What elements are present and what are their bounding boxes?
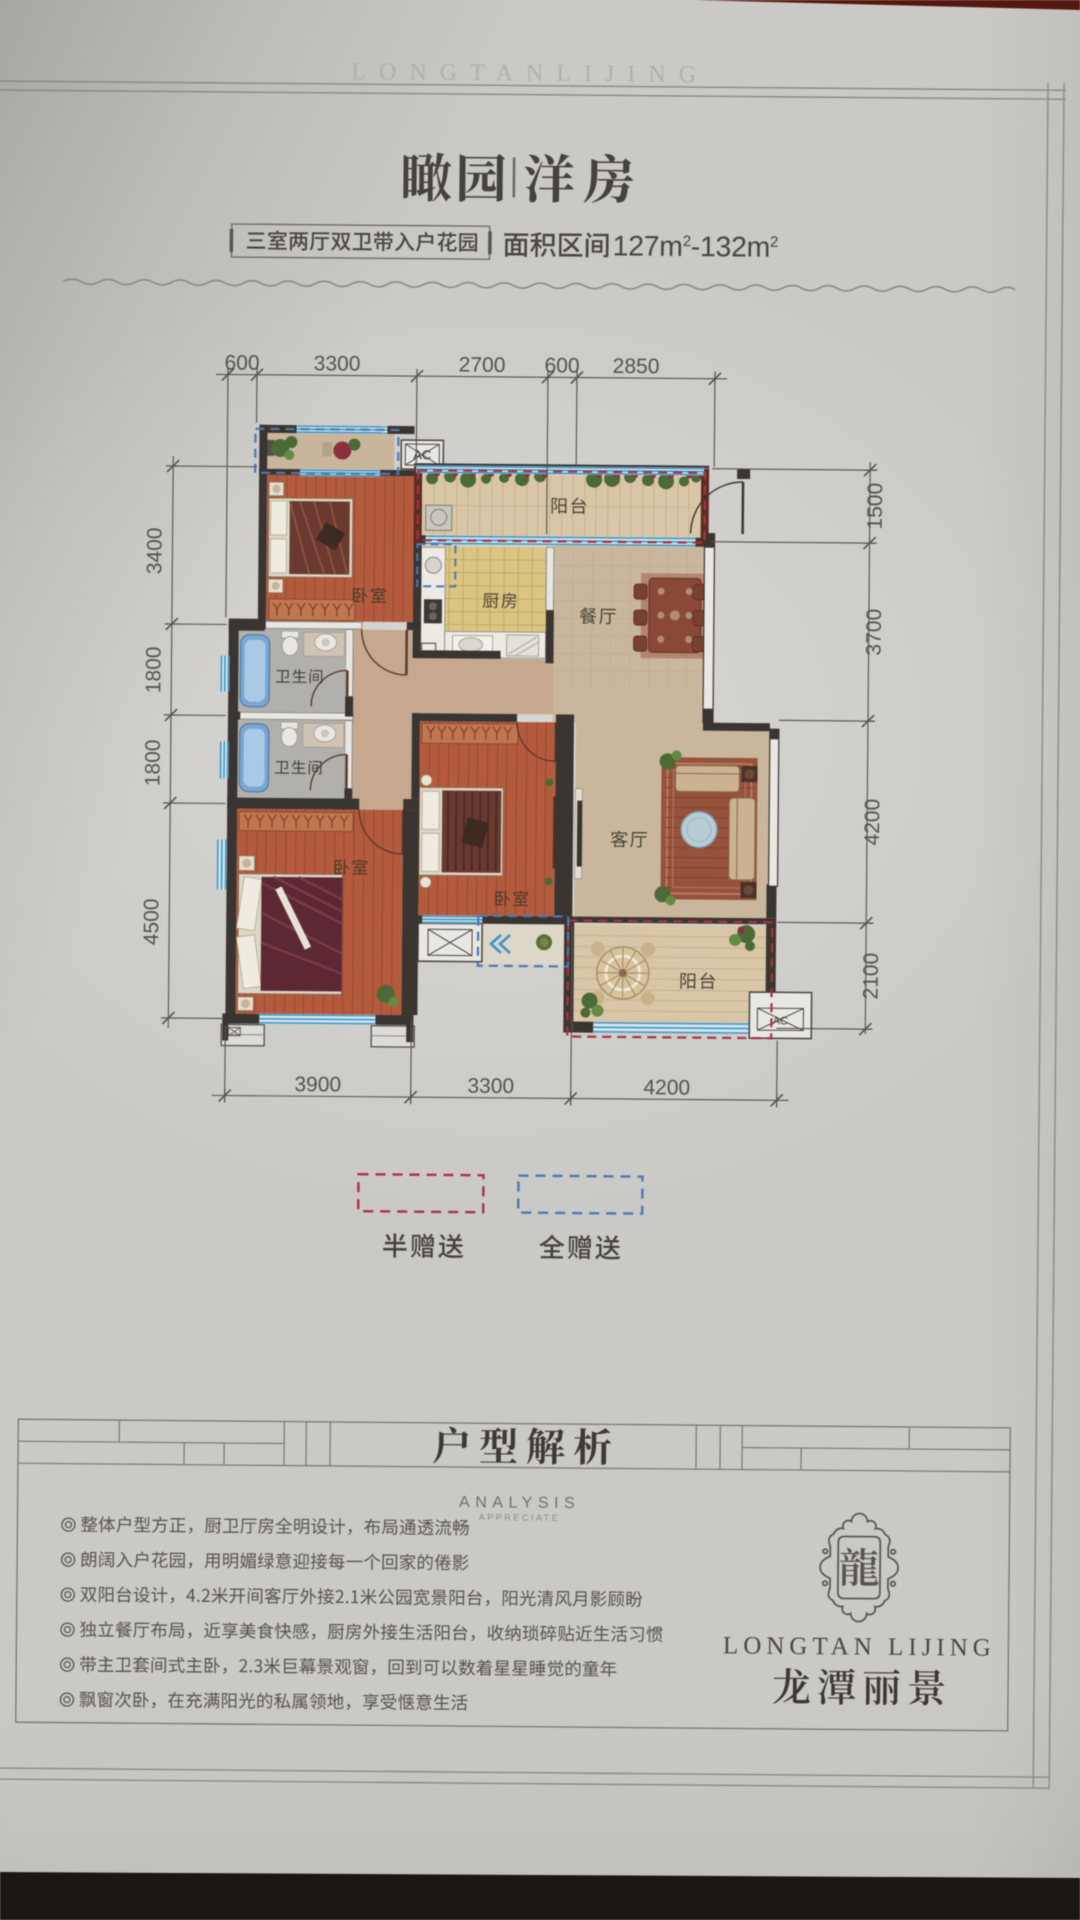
svg-text:4200: 4200 (861, 799, 884, 846)
svg-text:2700: 2700 (459, 354, 506, 377)
svg-text:3900: 3900 (294, 1073, 341, 1096)
svg-text:1500: 1500 (864, 483, 887, 530)
svg-text:4200: 4200 (643, 1076, 690, 1099)
svg-text:1800: 1800 (142, 646, 165, 693)
svg-text:127m2-132m2: 127m2-132m2 (612, 230, 778, 263)
svg-text:4500: 4500 (140, 898, 163, 945)
svg-text:ANALYSIS: ANALYSIS (459, 1494, 580, 1512)
svg-text:AC: AC (773, 1015, 788, 1027)
svg-text:APPRECIATE: APPRECIATE (479, 1512, 560, 1523)
svg-text:2100: 2100 (860, 953, 883, 1000)
svg-text:2850: 2850 (613, 355, 660, 378)
svg-text:3700: 3700 (863, 609, 886, 656)
svg-text:3300: 3300 (467, 1075, 514, 1098)
svg-text:LONGTANLIJING: LONGTANLIJING (351, 59, 709, 88)
svg-text:LONGTAN LIJING: LONGTAN LIJING (723, 1632, 996, 1661)
svg-text:600: 600 (224, 351, 259, 374)
svg-text:3300: 3300 (314, 352, 361, 375)
svg-text:600: 600 (544, 354, 579, 377)
svg-text:3400: 3400 (143, 527, 166, 574)
svg-text:1800: 1800 (141, 739, 164, 786)
